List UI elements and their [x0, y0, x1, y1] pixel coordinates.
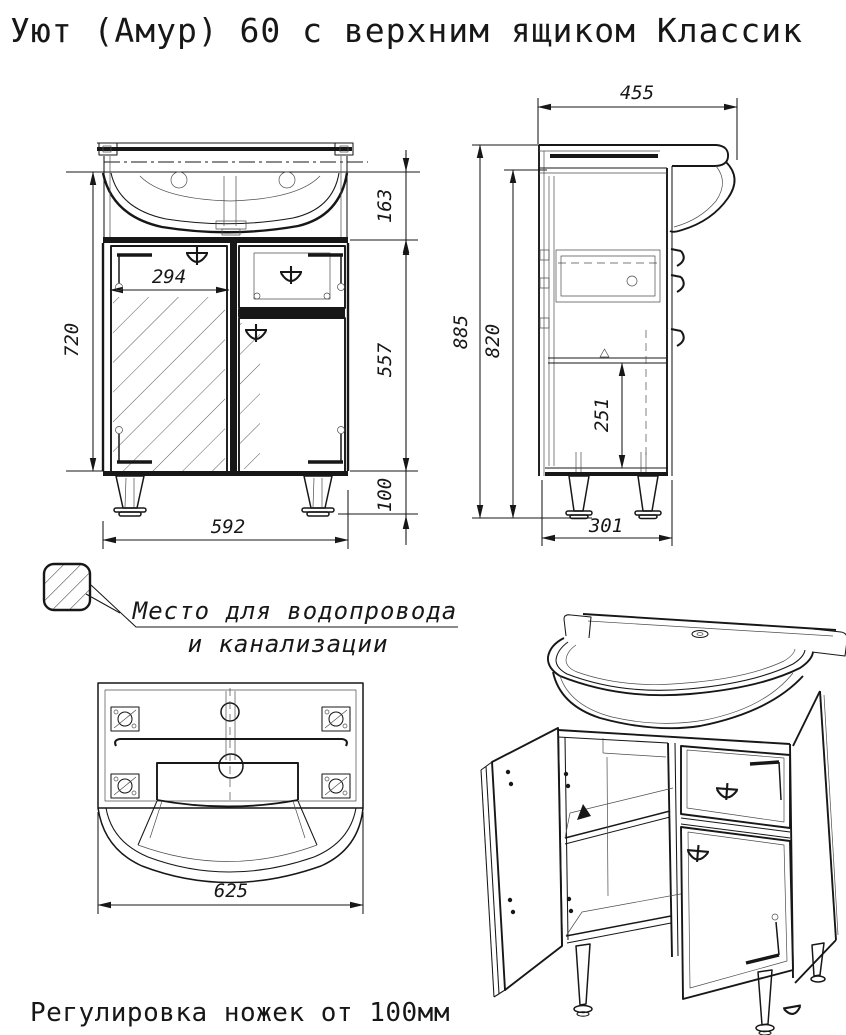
footer-note: Регулировка ножек от 100мм: [30, 998, 450, 1028]
dim-side-depth: 455: [620, 82, 654, 104]
dim-side-shelf-height: 251: [591, 398, 613, 432]
page-title: Уют (Амур) 60 с верхним ящиком Классик: [10, 11, 803, 50]
dim-side-total-height: 885: [450, 315, 472, 349]
plumbing-note-line2: и канализации: [188, 630, 389, 658]
plumbing-legend-swatch: [44, 564, 90, 610]
dim-front-leg-height: 100: [374, 478, 396, 512]
dim-front-cabinet-height: 720: [61, 323, 83, 357]
dim-side-body-height: 820: [482, 324, 504, 358]
dim-front-sink-height: 163: [374, 189, 396, 223]
dim-front-lower-height: 557: [374, 342, 396, 377]
drawer-3d: [681, 746, 790, 828]
plumbing-hatch-strip: [239, 323, 260, 469]
plumbing-note-line1: Место для водопровода: [132, 597, 457, 625]
dim-top-width: 625: [214, 880, 248, 902]
dim-front-door-width: 294: [152, 266, 186, 288]
dim-front-width: 592: [211, 516, 245, 538]
dim-side-bottom-depth: 301: [588, 515, 623, 537]
technical-drawing-page: Уют (Амур) 60 с верхним ящиком Классик: [0, 0, 846, 1035]
drawing-canvas: Уют (Амур) 60 с верхним ящиком Классик: [0, 0, 846, 1035]
plumbing-hatch-area: [113, 297, 225, 471]
